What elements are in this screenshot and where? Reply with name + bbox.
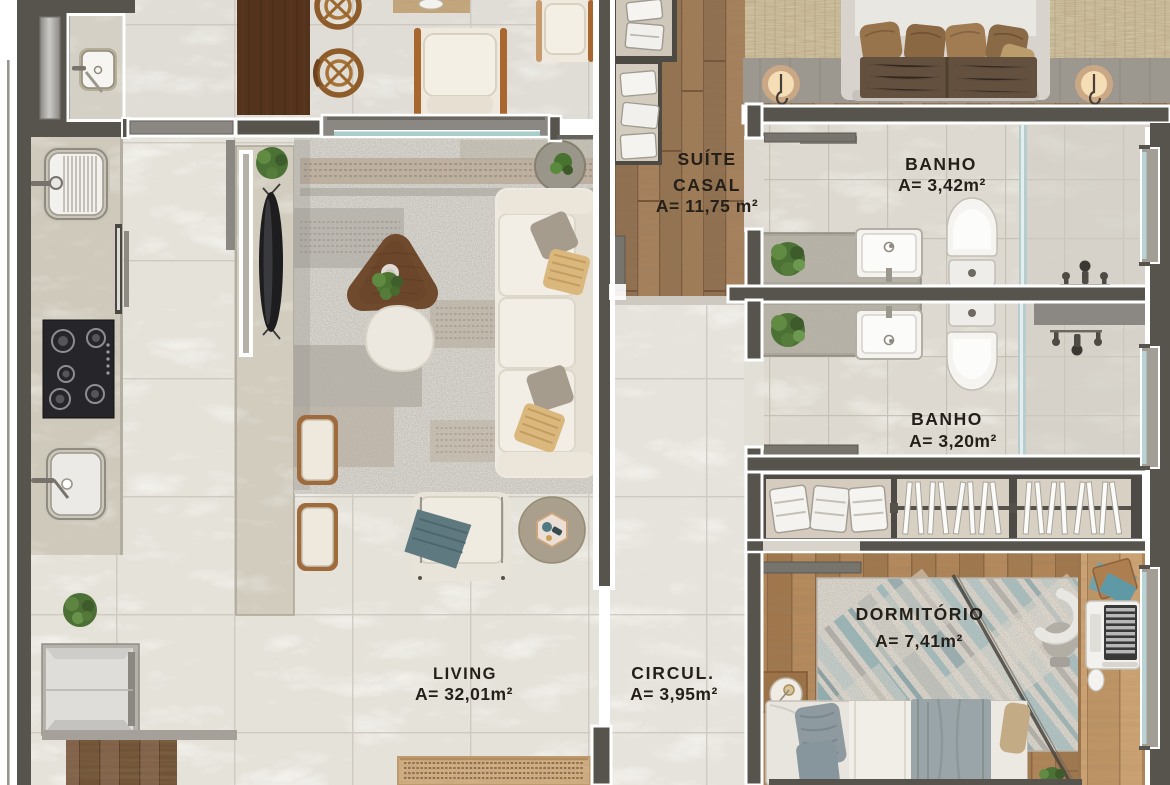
svg-text:BANHO: BANHO xyxy=(905,154,977,174)
svg-text:A= 11,75 m²: A= 11,75 m² xyxy=(656,196,758,216)
svg-text:SUÍTE: SUÍTE xyxy=(677,148,736,169)
svg-text:A= 3,42m²: A= 3,42m² xyxy=(898,175,986,195)
svg-text:BANHO: BANHO xyxy=(911,409,983,429)
svg-text:CIRCUL.: CIRCUL. xyxy=(631,663,715,683)
svg-text:A= 7,41m²: A= 7,41m² xyxy=(875,631,963,651)
svg-text:LIVING: LIVING xyxy=(433,665,497,683)
svg-text:CASAL: CASAL xyxy=(673,175,741,195)
svg-text:A= 3,95m²: A= 3,95m² xyxy=(630,684,718,704)
svg-text:A= 3,20m²: A= 3,20m² xyxy=(909,431,997,451)
svg-text:DORMITÓRIO: DORMITÓRIO xyxy=(856,603,985,624)
svg-text:A= 32,01m²: A= 32,01m² xyxy=(415,684,513,704)
